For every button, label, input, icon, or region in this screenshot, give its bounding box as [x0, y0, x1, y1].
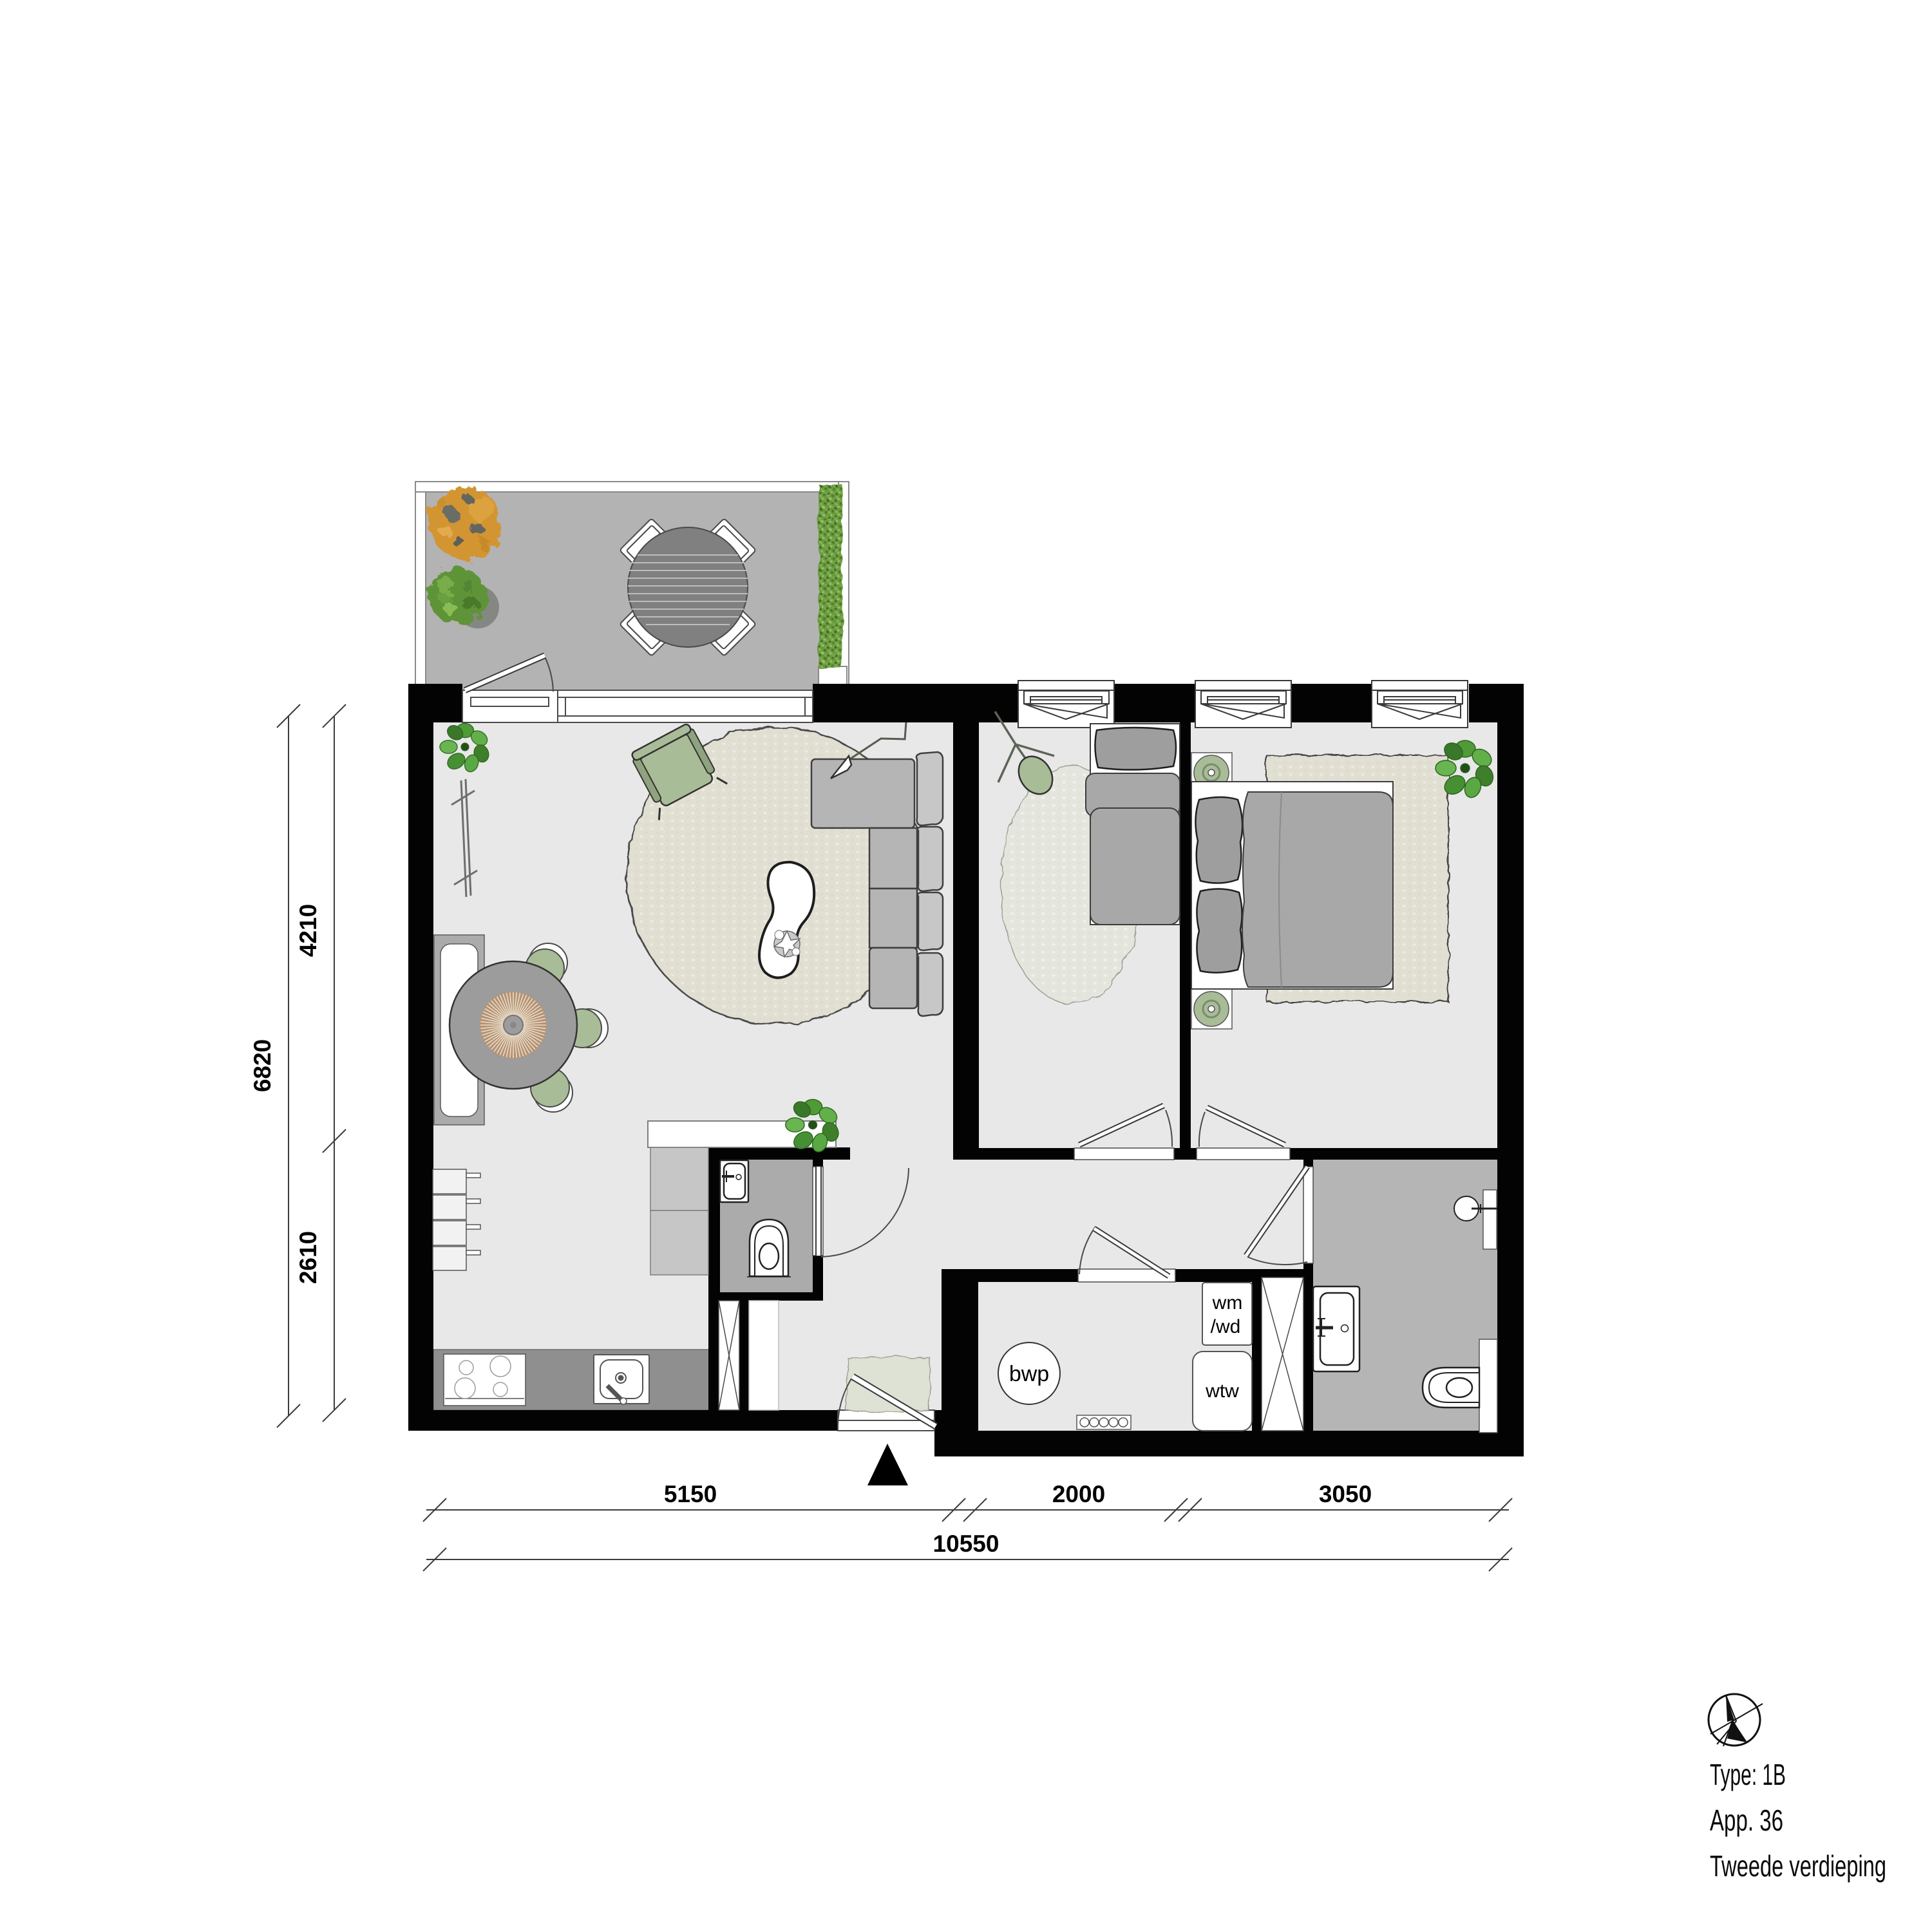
svg-text:2610: 2610	[295, 1231, 321, 1284]
svg-text:10550: 10550	[933, 1531, 999, 1557]
svg-text:Tweede verdieping: Tweede verdieping	[1710, 1849, 1886, 1883]
svg-text:6820: 6820	[249, 1039, 276, 1092]
svg-text:2000: 2000	[1052, 1481, 1105, 1507]
svg-text:wm: wm	[1212, 1292, 1243, 1314]
svg-text:4210: 4210	[295, 904, 321, 957]
svg-text:3050: 3050	[1319, 1481, 1372, 1507]
svg-text:/wd: /wd	[1211, 1316, 1241, 1337]
svg-text:5150: 5150	[664, 1481, 717, 1507]
svg-text:App. 36: App. 36	[1710, 1804, 1783, 1837]
svg-text:wtw: wtw	[1205, 1380, 1239, 1402]
svg-text:Type: 1B: Type: 1B	[1710, 1758, 1786, 1791]
svg-text:bwp: bwp	[1009, 1362, 1049, 1386]
